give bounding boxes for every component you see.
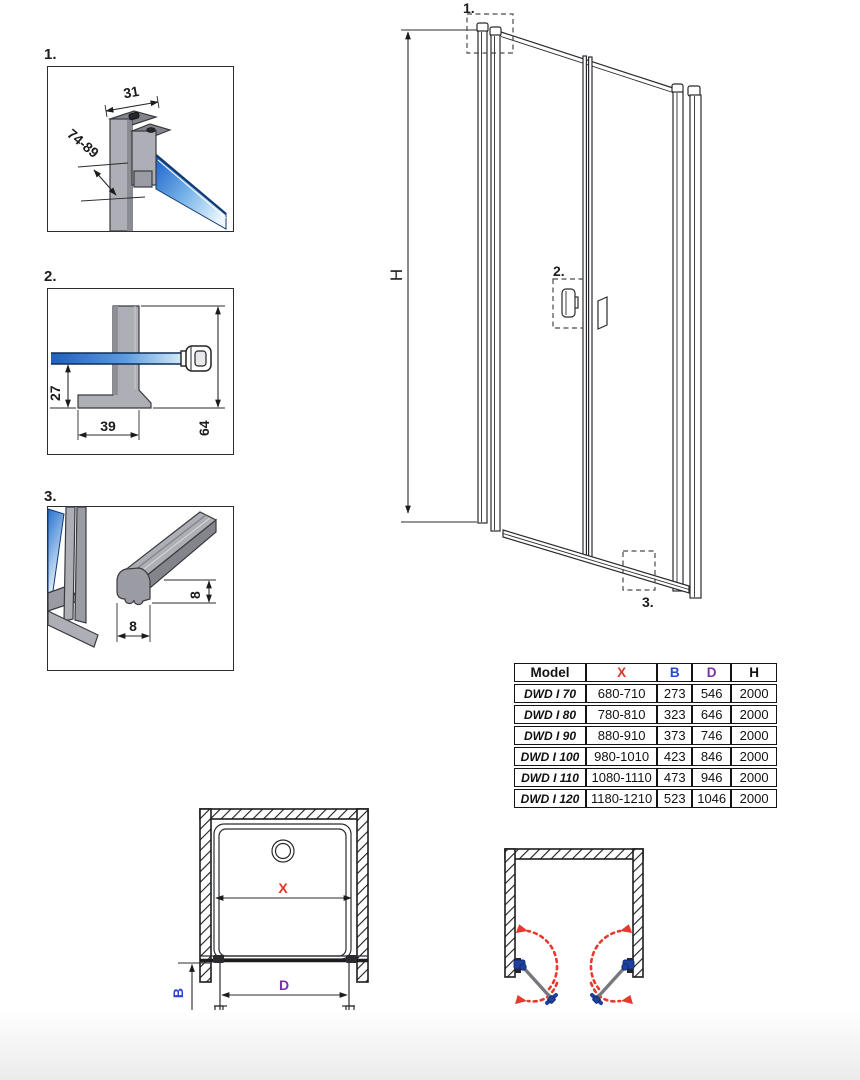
svg-text:39: 39 — [100, 418, 116, 434]
cell-x: 780-810 — [586, 705, 657, 724]
threshold-and-pivots — [200, 955, 368, 963]
svg-text:3.: 3. — [642, 594, 654, 610]
plan-view-swing — [495, 840, 655, 1020]
svg-text:8: 8 — [187, 591, 203, 599]
cell-h: 2000 — [731, 684, 777, 703]
cell-d: 546 — [692, 684, 731, 703]
arc-arrow-out — [515, 995, 528, 1006]
open-door-leaves — [214, 963, 355, 1023]
cell-x: 1180-1210 — [586, 789, 657, 808]
dim-8-width: 8 — [117, 603, 150, 642]
dim-b: B — [170, 963, 225, 1023]
right-pivot-block — [346, 955, 357, 963]
detail-1-panel: 31 74-89 — [47, 66, 234, 232]
cell-b: 373 — [657, 726, 692, 745]
height-dimension: H — [387, 30, 478, 522]
cell-x: 1080-1110 — [586, 768, 657, 787]
detail-1-label: 1. — [44, 46, 57, 63]
swing-arc-in — [528, 931, 557, 989]
right-wall-profile — [688, 86, 701, 598]
arc-arrow-in — [516, 924, 529, 935]
cell-b: 473 — [657, 768, 692, 787]
cell-d: 946 — [692, 768, 731, 787]
cell-model: DWD I 80 — [514, 705, 586, 724]
header-model: Model — [514, 663, 586, 682]
door-knob — [181, 346, 211, 371]
cell-d: 746 — [692, 726, 731, 745]
detail-3-panel: 8 8 — [47, 506, 234, 671]
cell-model: DWD I 120 — [514, 789, 586, 808]
table-row: DWD I 70 680-710 273 546 2000 — [514, 684, 777, 703]
detail-1-drawing: 31 74-89 — [48, 67, 233, 231]
cell-h: 2000 — [731, 747, 777, 766]
center-meeting-stiles — [583, 56, 592, 558]
detail-2-label: 2. — [44, 268, 57, 285]
glass-top-edge — [501, 32, 673, 93]
svg-text:31: 31 — [122, 83, 140, 101]
table-row: DWD I 90 880-910 373 746 2000 — [514, 726, 777, 745]
table-row: DWD I 120 1180-1210 523 1046 2000 — [514, 789, 777, 808]
cell-model: DWD I 90 — [514, 726, 586, 745]
svg-text:D: D — [279, 977, 289, 993]
dim-x: X — [216, 880, 351, 898]
svg-text:64: 64 — [196, 420, 212, 436]
glass-and-frame-corner — [48, 507, 98, 647]
cell-x: 880-910 — [586, 726, 657, 745]
dim-64: 64 — [141, 306, 225, 436]
svg-text:8: 8 — [129, 618, 137, 634]
door-leaf — [522, 966, 551, 998]
header-b: B — [657, 663, 692, 682]
left-pivot-block — [213, 955, 224, 963]
dim-8-height: 8 — [152, 580, 216, 603]
cell-b: 423 — [657, 747, 692, 766]
header-h: H — [731, 663, 777, 682]
svg-text:27: 27 — [47, 385, 63, 401]
detail-3-drawing: 8 8 — [48, 507, 233, 670]
glass-panel — [51, 353, 185, 364]
size-table-header-row: Model X B D H — [514, 663, 777, 682]
cell-h: 2000 — [731, 789, 777, 808]
right-door-stile — [672, 84, 683, 591]
dim-39: 39 — [78, 410, 139, 440]
cell-h: 2000 — [731, 768, 777, 787]
cell-x: 680-710 — [586, 684, 657, 703]
hinge-pivot — [520, 964, 526, 970]
left-door-handle — [562, 289, 578, 317]
cell-model: DWD I 70 — [514, 684, 586, 703]
svg-text:74-89: 74-89 — [64, 126, 102, 161]
detail-2-panel: 27 39 64 — [47, 288, 234, 455]
table-row: DWD I 100 980-1010 423 846 2000 — [514, 747, 777, 766]
dim-d: D — [222, 977, 347, 995]
right-door-handle — [598, 297, 607, 329]
cell-h: 2000 — [731, 726, 777, 745]
cell-b: 273 — [657, 684, 692, 703]
dim-27: 27 — [47, 365, 76, 408]
svg-text:1.: 1. — [463, 0, 475, 16]
svg-text:H: H — [387, 269, 406, 281]
header-d: D — [692, 663, 731, 682]
cell-model: DWD I 100 — [514, 747, 586, 766]
left-wall-profile — [477, 23, 501, 531]
cell-b: 523 — [657, 789, 692, 808]
svg-text:X: X — [278, 880, 288, 896]
cell-h: 2000 — [731, 705, 777, 724]
cell-b: 323 — [657, 705, 692, 724]
door-elevation-drawing: H 1. — [390, 5, 740, 650]
cell-d: 646 — [692, 705, 731, 724]
size-table: Model X B D H DWD I 70 680-710 273 546 2… — [514, 661, 777, 810]
spec-sheet-page: { "colors": { "line": "#2a2b2e", "accent… — [0, 0, 860, 1080]
swing-door-right — [591, 924, 634, 1006]
svg-text:B: B — [170, 988, 186, 998]
page-bottom-shade — [0, 1010, 860, 1080]
bottom-seal-prism — [117, 512, 216, 605]
cell-d: 846 — [692, 747, 731, 766]
cell-x: 980-1010 — [586, 747, 657, 766]
table-row: DWD I 80 780-810 323 646 2000 — [514, 705, 777, 724]
cell-model: DWD I 110 — [514, 768, 586, 787]
glass-panel — [156, 155, 226, 229]
detail-3-label: 3. — [44, 488, 57, 505]
swing-door-left — [514, 924, 557, 1006]
size-table-body: Model X B D H DWD I 70 680-710 273 546 2… — [514, 663, 777, 808]
header-x: X — [586, 663, 657, 682]
walls — [505, 849, 643, 977]
cell-d: 1046 — [692, 789, 731, 808]
svg-text:2.: 2. — [553, 263, 565, 279]
bottom-seal-strip — [503, 530, 689, 593]
plan-view-dimensions: X B D — [170, 795, 380, 1030]
table-row: DWD I 110 1080-1110 473 946 2000 — [514, 768, 777, 787]
detail-2-drawing: 27 39 64 — [48, 289, 233, 454]
